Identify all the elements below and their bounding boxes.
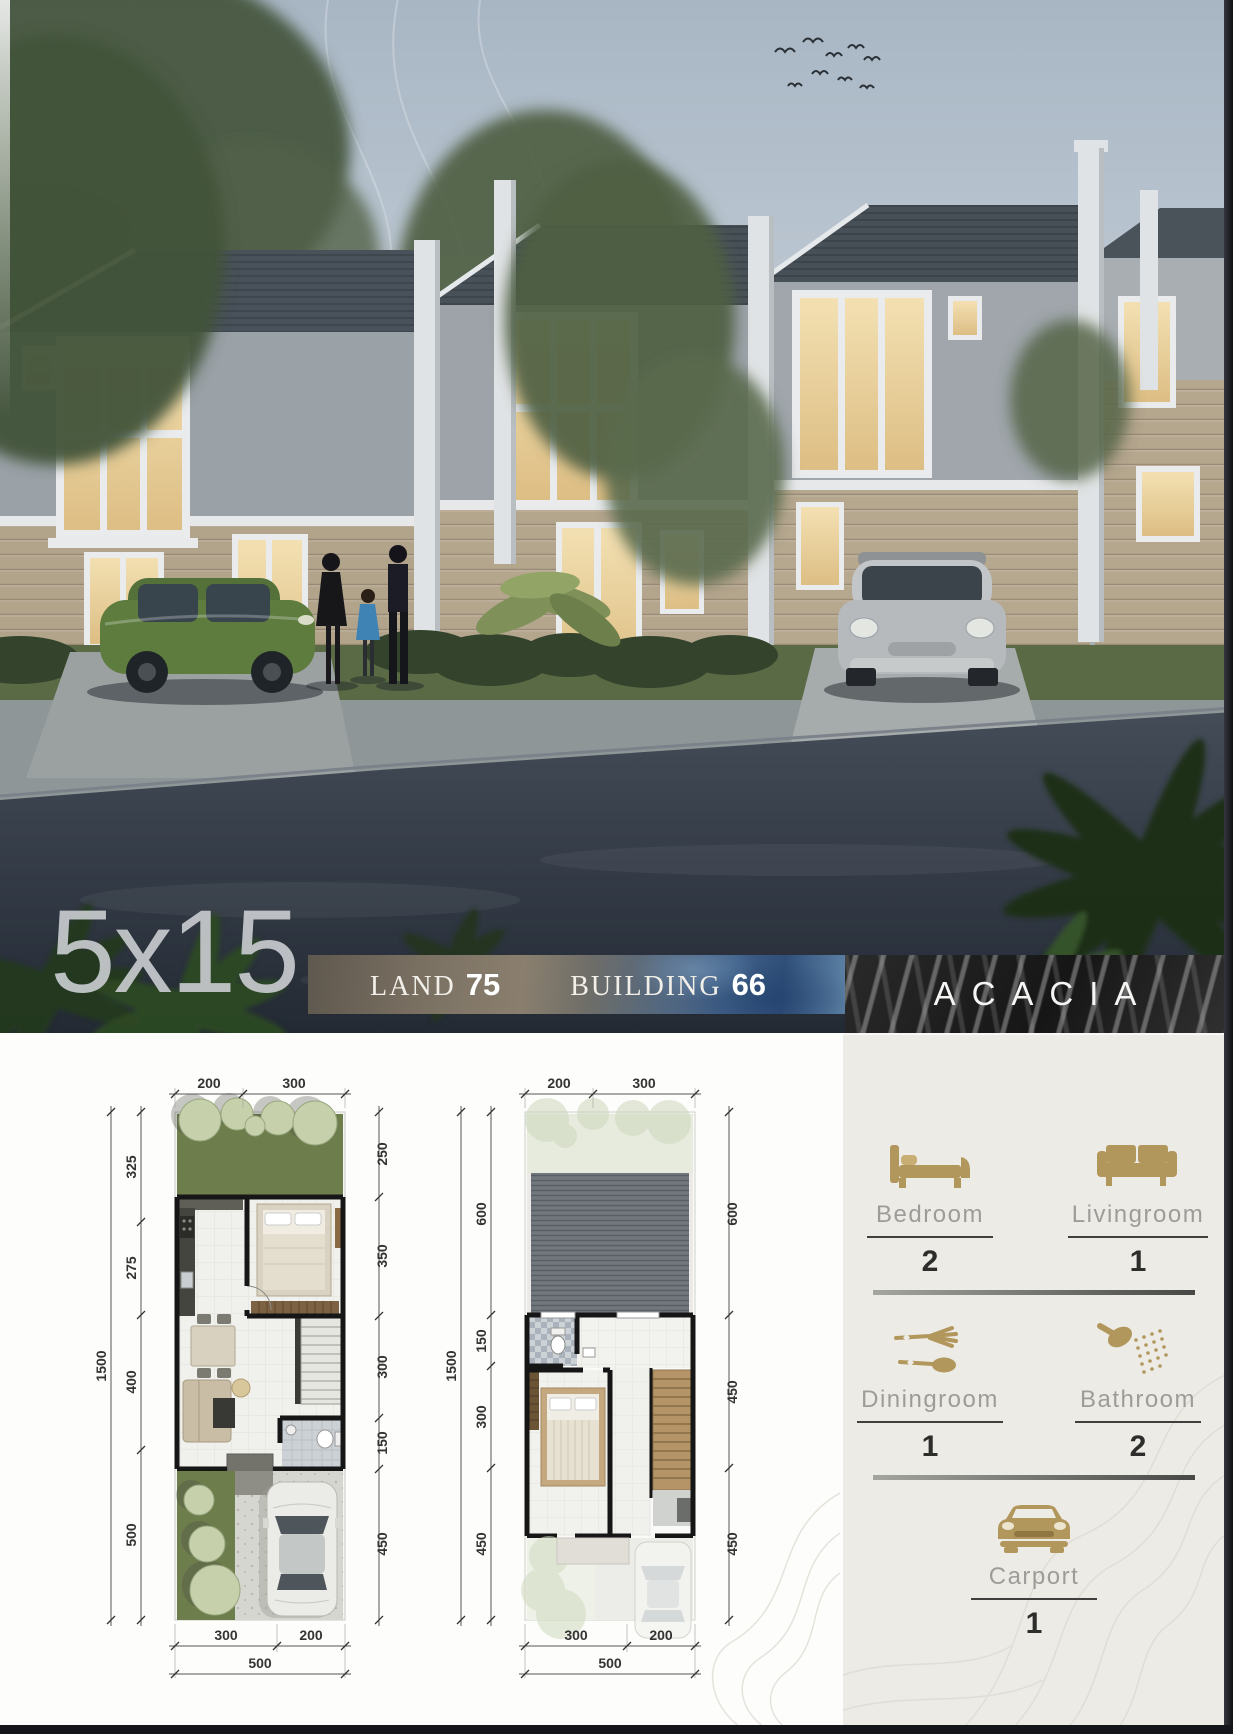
building-stat: BUILDING 66 (570, 967, 766, 1003)
legend-item-livingroom: Livingroom 1 (1062, 1135, 1214, 1279)
cutlery-icon (884, 1320, 976, 1378)
bed-icon (884, 1135, 976, 1193)
stairs (295, 1318, 343, 1404)
dim-label: 300 (282, 1075, 306, 1091)
legend-item-bedroom: Bedroom 2 (854, 1135, 1006, 1279)
silver-car (824, 552, 1020, 703)
brand-logo: ACACIA (918, 975, 1153, 1013)
building-value: 66 (732, 967, 766, 1003)
legend-item-carport: Carport 1 (958, 1497, 1110, 1641)
dim-label: 600 (473, 1202, 489, 1226)
legend-count: 1 (922, 1430, 939, 1464)
floorplan-ground: 200 300 1500 325 275 400 500 250 350 300… (95, 1058, 445, 1683)
car-topview (259, 1482, 341, 1618)
floorplan-section: 200 300 1500 325 275 400 500 250 350 300… (0, 1033, 1233, 1734)
dim-label: 300 (374, 1355, 390, 1379)
land-stat: LAND 75 (370, 967, 500, 1003)
dim-label: 200 (547, 1075, 571, 1091)
hero-photo-illustration (0, 0, 1233, 1033)
legend-row-1: Bedroom 2 Livingroom 1 (843, 1135, 1225, 1279)
sofa-icon (1092, 1135, 1184, 1193)
floorplan-upper: 200 300 1500 600 150 300 450 600 450 450… (445, 1058, 795, 1683)
dim-label: 150 (374, 1431, 390, 1455)
dim-label: 450 (724, 1380, 740, 1404)
page-edge-highlight (0, 0, 10, 420)
dim-label: 300 (473, 1405, 489, 1429)
dim-label: 300 (632, 1075, 656, 1091)
room-legend-panel: Bedroom 2 Livingroom 1 (843, 1033, 1225, 1726)
dim-label: 350 (374, 1244, 390, 1268)
dim-label: 1500 (445, 1350, 459, 1381)
hero-photo (0, 0, 1233, 1033)
dim-label: 500 (248, 1655, 272, 1671)
legend-item-diningroom: Diningroom 1 (854, 1320, 1006, 1464)
page-border-bottom (0, 1725, 1233, 1734)
lot-size-label: 5x15 (50, 893, 298, 1011)
car-icon (988, 1497, 1080, 1555)
legend-label: Bathroom (1075, 1386, 1201, 1423)
legend-divider (873, 1475, 1195, 1480)
dim-label: 200 (649, 1627, 673, 1643)
legend-count: 1 (1130, 1245, 1147, 1279)
dim-label: 275 (123, 1256, 139, 1280)
legend-count: 2 (922, 1245, 939, 1279)
legend-item-bathroom: Bathroom 2 (1062, 1320, 1214, 1464)
legend-count: 2 (1130, 1430, 1147, 1464)
land-label: LAND (370, 971, 456, 1003)
dim-label: 325 (123, 1155, 139, 1179)
legend-row-2: Diningroom 1 (843, 1320, 1225, 1464)
dim-label: 1500 (95, 1350, 109, 1381)
dim-label: 300 (564, 1627, 588, 1643)
legend-divider (873, 1290, 1195, 1295)
roof (527, 1173, 693, 1315)
dim-label: 450 (724, 1532, 740, 1556)
stat-band: LAND 75 BUILDING 66 (308, 955, 845, 1014)
shower-icon (1092, 1320, 1184, 1378)
legend-label: Bedroom (867, 1201, 993, 1238)
dim-label: 450 (473, 1532, 489, 1556)
legend-label: Diningroom (857, 1386, 1003, 1423)
brand-panel: ACACIA (845, 955, 1225, 1033)
bathroom (282, 1420, 343, 1469)
dim-label: 500 (123, 1523, 139, 1547)
legend-label: Carport (971, 1563, 1097, 1600)
faded-ground-floor (521, 1536, 693, 1639)
stairs-upper (653, 1370, 693, 1526)
dim-label: 250 (374, 1142, 390, 1166)
dim-label: 600 (724, 1202, 740, 1226)
page-border-right (1224, 0, 1233, 1734)
dim-label: 200 (299, 1627, 323, 1643)
dim-label: 200 (197, 1075, 221, 1091)
legend-row-3: Carport 1 (843, 1497, 1225, 1641)
brochure-page: 5x15 LAND 75 BUILDING 66 ACACIA (0, 0, 1233, 1734)
dim-label: 150 (473, 1329, 489, 1353)
dim-label: 500 (598, 1655, 622, 1671)
legend-label: Livingroom (1068, 1201, 1208, 1238)
legend-count: 1 (1026, 1607, 1043, 1641)
dim-label: 450 (374, 1532, 390, 1556)
dim-label: 400 (123, 1370, 139, 1394)
building-label: BUILDING (570, 971, 721, 1003)
dim-label: 300 (214, 1627, 238, 1643)
land-value: 75 (466, 967, 500, 1003)
